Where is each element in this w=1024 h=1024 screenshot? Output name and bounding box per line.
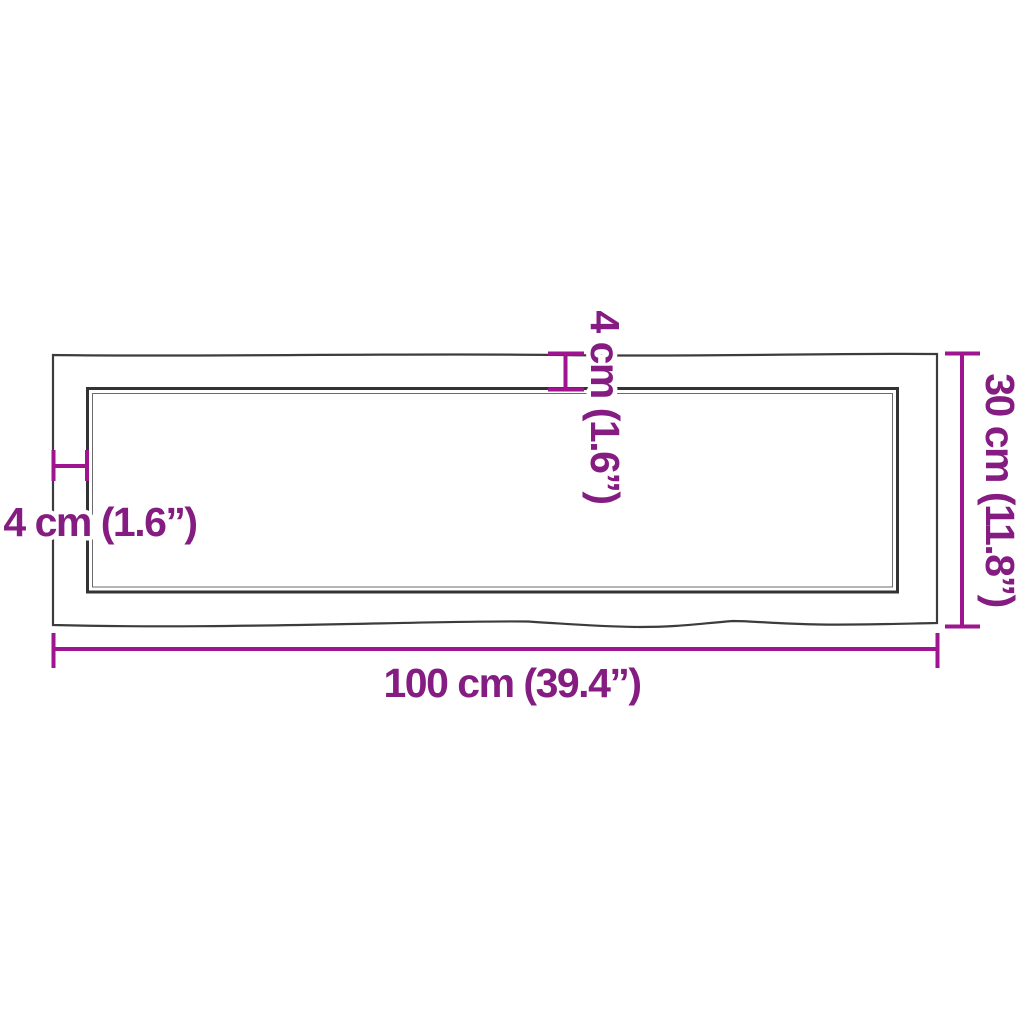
width-dimension-label: 100 cm (39.4”) [383, 660, 640, 706]
dimension-diagram-page: 4 cm (1.6”) 4 cm (1.6”) 100 cm (39.4”) 3… [0, 0, 1024, 1024]
height-dimension [945, 353, 980, 627]
left-thickness-dimension-label: 4 cm (1.6”) [3, 499, 196, 545]
top-thickness-dimension-label: 4 cm (1.6”) [582, 310, 628, 503]
dimension-diagram: 4 cm (1.6”) 4 cm (1.6”) 100 cm (39.4”) 3… [0, 0, 1024, 1024]
height-dimension-label: 30 cm (11.8”) [977, 373, 1023, 607]
panel-outline [53, 354, 937, 627]
